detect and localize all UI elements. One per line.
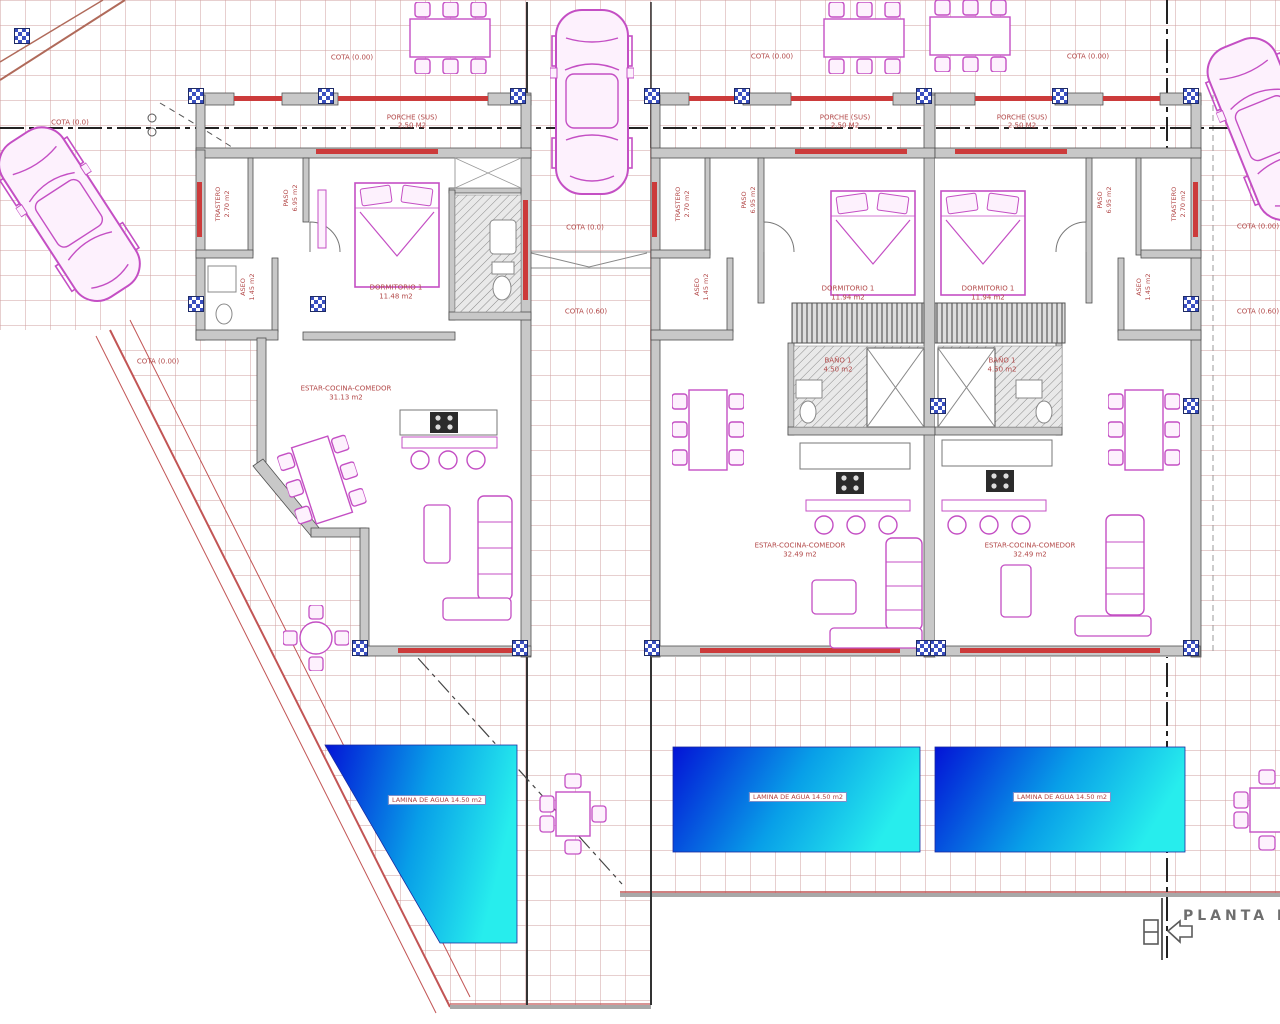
room-area: 6.95 m2 (291, 184, 299, 211)
cota-label: COTA (0.00) (1237, 223, 1279, 230)
room-label: TRASTERO (1170, 187, 1178, 222)
room-area: 2.70 m2 (1179, 190, 1187, 217)
cota-label: COTA (0.00) (751, 53, 793, 60)
room-area: 4.50 m2 (987, 366, 1016, 373)
toilet (493, 276, 511, 300)
room-area: 32.49 m2 (783, 551, 817, 558)
room-label: BAÑO 1 (824, 357, 851, 364)
room-label: ASEO (693, 278, 701, 296)
cota-label: COTA (0.00) (1067, 53, 1109, 60)
car-icon (550, 10, 634, 194)
stove (836, 472, 864, 494)
dining-set (1108, 390, 1180, 470)
room-area: 6.95 m2 (1105, 186, 1113, 213)
room-area: 11.94 m2 (971, 294, 1005, 301)
room-label: DORMITORIO 1 (962, 285, 1015, 292)
room-label: ASEO (239, 278, 247, 296)
sink (1016, 380, 1042, 398)
sofa (886, 538, 922, 630)
room-label: ESTAR-COCINA-COMEDOR (301, 385, 392, 392)
bed (355, 183, 439, 287)
sink (796, 380, 822, 398)
room-label: DORMITORIO 1 (370, 284, 423, 291)
house-right (935, 93, 1201, 657)
room-area: 11.48 m2 (379, 293, 413, 300)
island-bar (942, 500, 1046, 511)
room-area: 2.70 m2 (223, 190, 231, 217)
room-area: 4.50 m2 (823, 366, 852, 373)
dining-set (672, 390, 744, 470)
room-area: 6.95 m2 (749, 186, 757, 213)
bed (941, 191, 1025, 295)
cota-label: COTA (0.0) (566, 224, 604, 231)
room-area: 11.94 m2 (831, 294, 865, 301)
floor-plan: COTA (0.0) COTA (0.00) COTA (0.00) COTA … (0, 0, 1280, 1024)
porch-area: 2.50 M2 (831, 122, 859, 129)
room-label: ESTAR-COCINA-COMEDOR (985, 542, 1076, 549)
sink (490, 220, 516, 254)
porch-area: 2.50 M2 (1008, 122, 1036, 129)
pool-label: LAMINA DE AGUA 14.50 m2 (388, 795, 486, 805)
dresser (318, 190, 326, 248)
kitchen-counter (942, 440, 1052, 466)
room-area: 1.45 m2 (1144, 273, 1152, 300)
coffee-table (812, 580, 856, 614)
wardrobe-band (935, 303, 1065, 343)
stove (430, 412, 458, 433)
terrace-dining-set (410, 2, 490, 74)
room-area: 31.13 m2 (329, 394, 363, 401)
house-middle (651, 93, 935, 657)
cota-label: COTA (0.00) (137, 358, 179, 365)
bed (831, 191, 915, 295)
coffee-table (1001, 565, 1031, 617)
room-label: TRASTERO (674, 187, 682, 222)
pools (325, 745, 1185, 943)
wardrobe-band (792, 303, 924, 343)
coffee-table (424, 505, 450, 563)
kitchen-counter (800, 443, 910, 469)
shower-tray (208, 266, 236, 292)
porch-area: 2.50 M2 (398, 122, 426, 129)
pool-label: LAMINA DE AGUA 14.50 m2 (749, 792, 847, 802)
cota-label: COTA (0.00) (331, 54, 373, 61)
room-label: ESTAR-COCINA-COMEDOR (755, 542, 846, 549)
bench (443, 598, 511, 620)
toilet (1036, 401, 1052, 423)
pool-label: LAMINA DE AGUA 14.50 m2 (1013, 792, 1111, 802)
island-bar (402, 437, 497, 448)
room-area: 1.45 m2 (702, 273, 710, 300)
room-label: PASO (1096, 191, 1104, 208)
toilet (216, 304, 232, 324)
cota-label: COTA (0.0) (51, 119, 89, 126)
bench (830, 628, 922, 648)
cota-label: COTA (0.60) (1237, 308, 1279, 315)
plan-geometry (0, 0, 1280, 1024)
cota-label: COTA (0.60) (565, 308, 607, 315)
room-label: PASO (740, 191, 748, 208)
bench (1075, 616, 1151, 636)
room-area: 1.45 m2 (248, 273, 256, 300)
island-bar (806, 500, 910, 511)
toilet (800, 401, 816, 423)
room-label: PASO (282, 189, 290, 206)
terrace-dining-set (824, 2, 904, 74)
room-label: TRASTERO (214, 187, 222, 222)
terrace-dining-set (930, 0, 1010, 72)
stove (986, 470, 1014, 492)
room-area: 2.70 m2 (683, 190, 691, 217)
sofa (1106, 515, 1144, 615)
sheet-title: PLANTA BA (1183, 908, 1280, 924)
room-label: BAÑO 1 (988, 357, 1015, 364)
room-label: ASEO (1135, 278, 1143, 296)
room-area: 32.49 m2 (1013, 551, 1047, 558)
room-label: DORMITORIO 1 (822, 285, 875, 292)
